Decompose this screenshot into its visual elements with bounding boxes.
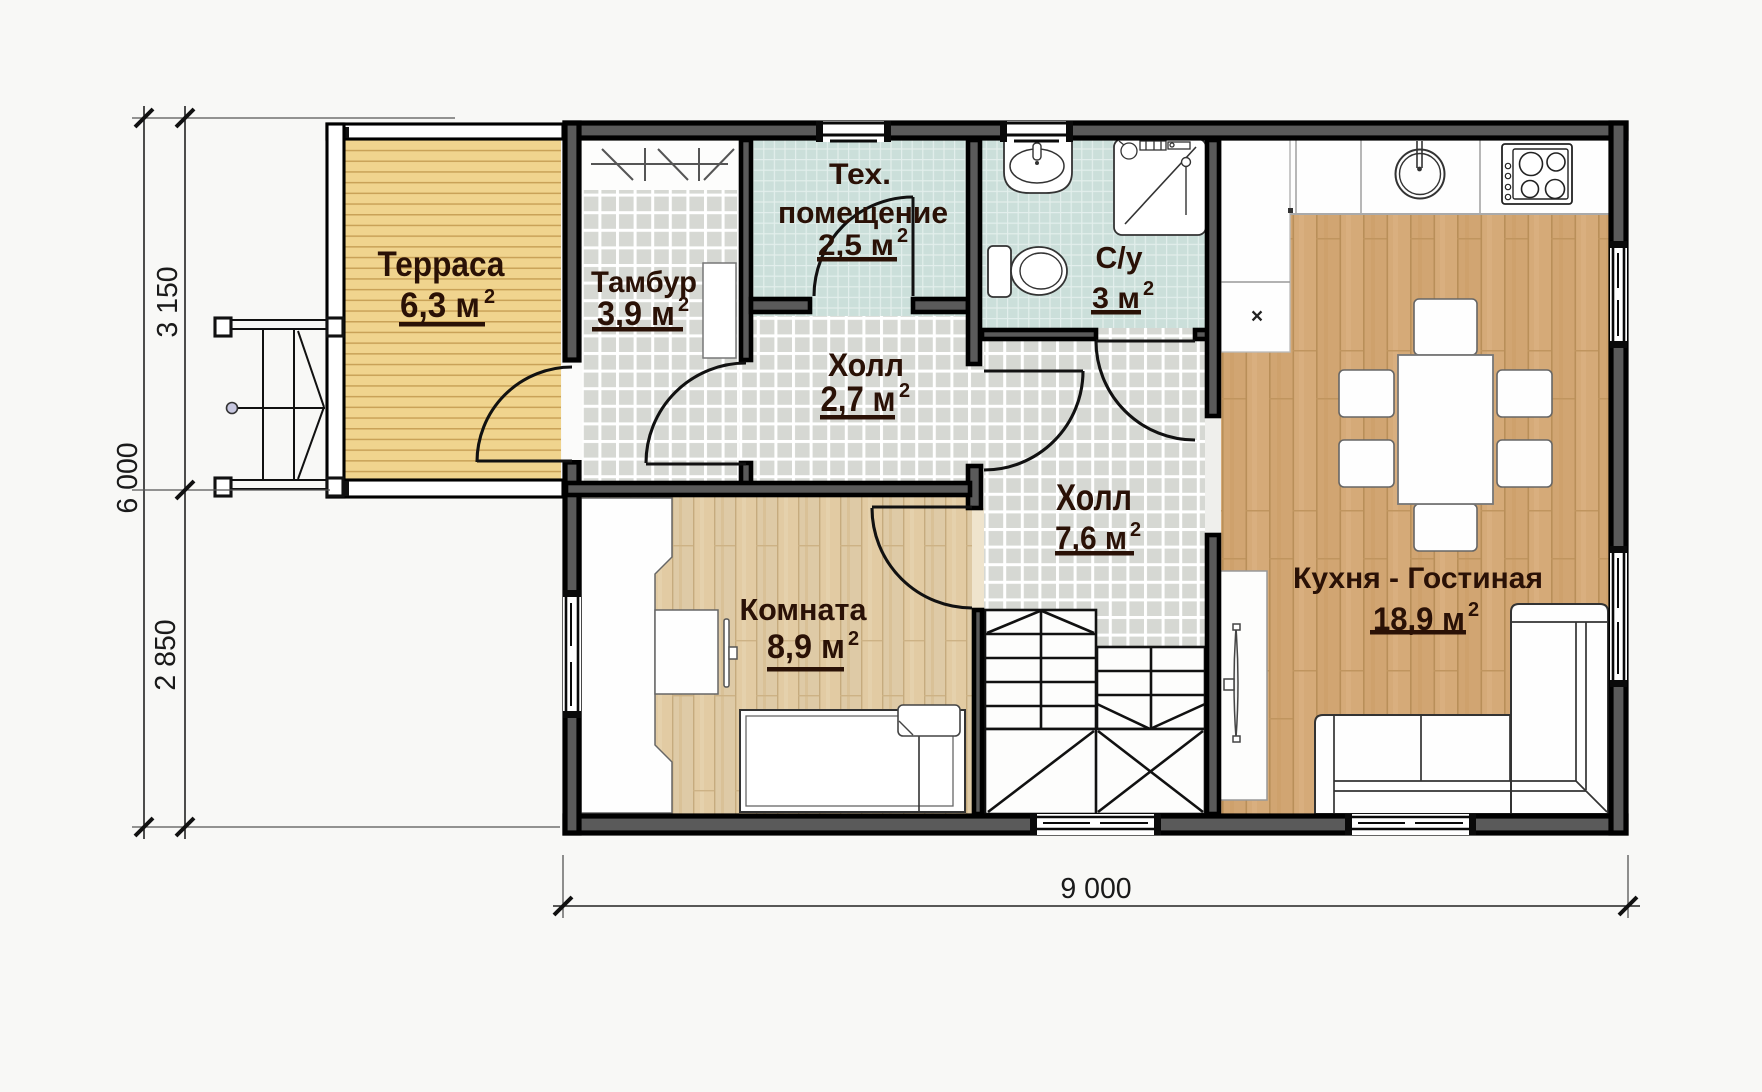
- svg-text:Тех.: Тех.: [829, 158, 891, 191]
- svg-text:6 000: 6 000: [112, 442, 144, 513]
- svg-text:Холл: Холл: [828, 347, 904, 383]
- svg-text:2: 2: [848, 628, 859, 650]
- svg-text:2: 2: [1130, 519, 1141, 541]
- svg-text:2 850: 2 850: [150, 619, 182, 690]
- svg-text:помещение: помещение: [778, 195, 948, 230]
- svg-text:2: 2: [678, 294, 689, 316]
- svg-text:2: 2: [484, 286, 495, 308]
- svg-text:Холл: Холл: [1056, 477, 1132, 518]
- svg-text:8,9 м: 8,9 м: [767, 628, 845, 666]
- svg-text:С/у: С/у: [1096, 240, 1144, 275]
- svg-text:×: ×: [1251, 305, 1263, 328]
- svg-text:7,6 м: 7,6 м: [1055, 520, 1127, 556]
- svg-text:2: 2: [897, 225, 908, 247]
- svg-text:2: 2: [1468, 599, 1479, 621]
- svg-text:Терраса: Терраса: [378, 245, 505, 284]
- svg-text:2: 2: [899, 380, 910, 402]
- svg-text:Комната: Комната: [740, 592, 868, 627]
- svg-text:2,7 м: 2,7 м: [821, 380, 896, 419]
- svg-text:3 150: 3 150: [152, 266, 184, 337]
- svg-text:2: 2: [1143, 278, 1154, 300]
- svg-text:9 000: 9 000: [1060, 873, 1131, 905]
- svg-text:Кухня - Гостиная: Кухня - Гостиная: [1293, 562, 1543, 595]
- svg-text:6,3 м: 6,3 м: [400, 286, 480, 325]
